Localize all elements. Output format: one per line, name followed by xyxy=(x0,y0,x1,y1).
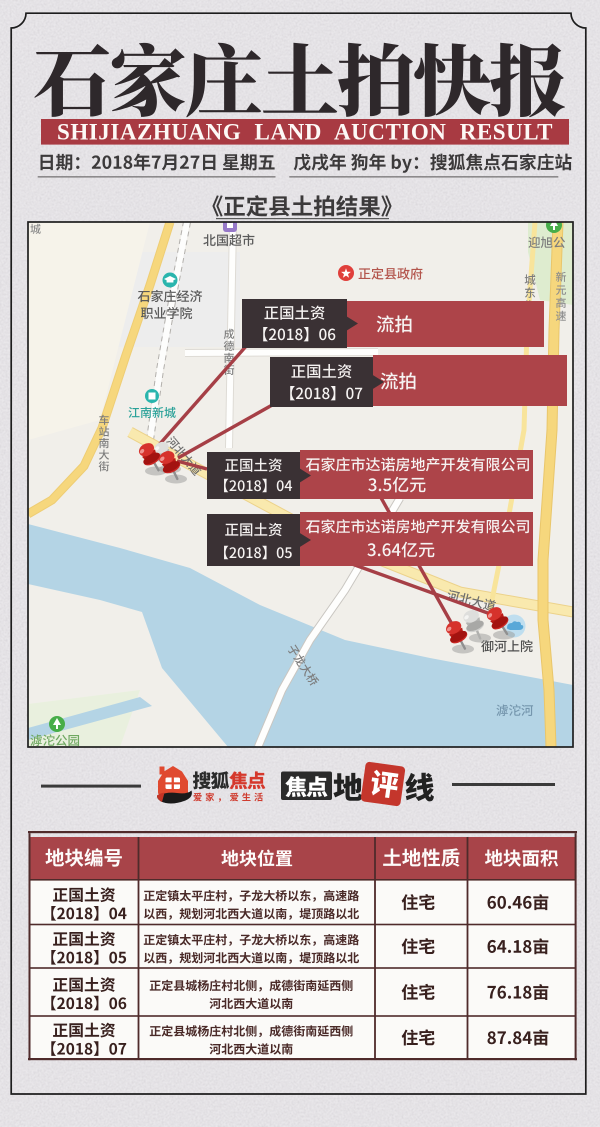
svg-text:SHIJIAZHUANG LAND AUCTION RESU: SHIJIAZHUANG LAND AUCTION RESULT xyxy=(57,120,553,145)
